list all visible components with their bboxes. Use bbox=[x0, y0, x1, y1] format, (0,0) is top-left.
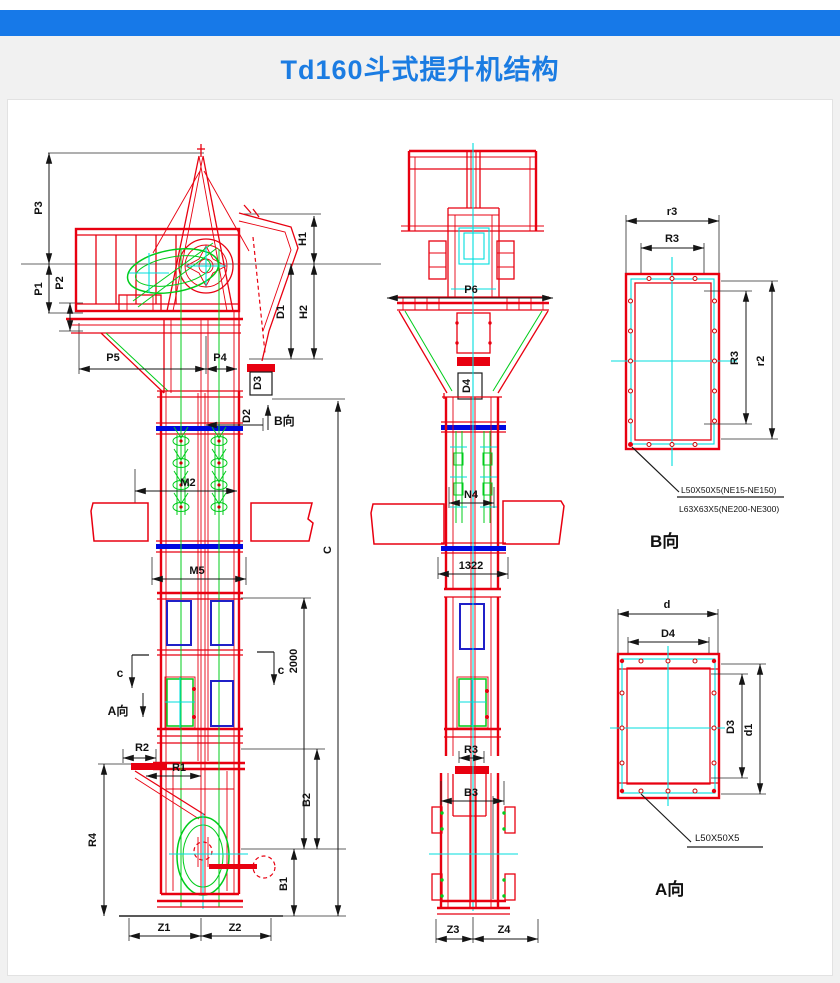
page-title: Td160斗式提升机结构 bbox=[280, 48, 559, 87]
top-margin bbox=[0, 0, 840, 10]
dim-label-p2: P2 bbox=[54, 276, 66, 289]
angle-steel-note-2: L63X63X5(NE200-NE300) bbox=[679, 504, 779, 514]
dim-label-d3-right: D3 bbox=[725, 720, 737, 734]
dim-label-r2-right: r2 bbox=[755, 356, 767, 366]
dim-label-z4: Z4 bbox=[498, 924, 512, 936]
drawing-area: P3 P1 P2 P5 P4 H1 D1 H2 D3 D2 B向 M2 M5 C… bbox=[7, 99, 833, 976]
dim-label-r4: R4 bbox=[87, 832, 99, 847]
dim-label-b1: B1 bbox=[278, 877, 290, 891]
angle-steel-note-a: L50X50X5 bbox=[695, 833, 739, 844]
header-bar bbox=[0, 10, 840, 36]
dim-label-r3-right: R3 bbox=[729, 351, 741, 365]
dim-label-r3-outer: r3 bbox=[667, 206, 677, 218]
front-view-drawing: P3 P1 P2 P5 P4 H1 D1 H2 D3 D2 B向 M2 M5 C… bbox=[21, 144, 381, 941]
dim-label-h2: H2 bbox=[298, 305, 310, 319]
dim-label-d2: D2 bbox=[241, 409, 253, 423]
dim-label-r1: R1 bbox=[172, 762, 186, 774]
dim-label-p1: P1 bbox=[33, 282, 45, 295]
dim-label-n4: N4 bbox=[464, 489, 479, 501]
dim-label-z1: Z1 bbox=[158, 922, 171, 934]
dim-label-b2: B2 bbox=[301, 793, 313, 807]
detail-a-caption: A向 bbox=[655, 879, 684, 899]
detail-a-view: L50X50X5 d D4 D3 d1 A向 bbox=[610, 599, 766, 899]
section-c-left-label: c bbox=[117, 666, 124, 680]
dim-label-d4-inner: D4 bbox=[661, 628, 676, 640]
section-c-right-label: c bbox=[278, 663, 285, 677]
dim-label-r3-side: R3 bbox=[464, 744, 478, 756]
dim-label-d1: D1 bbox=[275, 305, 287, 319]
dim-label-b3: B3 bbox=[464, 787, 478, 799]
dim-label-p6: P6 bbox=[464, 284, 477, 296]
dim-label-c-total: C bbox=[322, 546, 334, 554]
dim-label-m5: M5 bbox=[189, 565, 204, 577]
technical-drawing: P3 P1 P2 P5 P4 H1 D1 H2 D3 D2 B向 M2 M5 C… bbox=[8, 100, 834, 977]
dim-label-2000: 2000 bbox=[288, 649, 300, 673]
detail-b-view: L50X50X5(NE15-NE150) L63X63X5(NE200-NE30… bbox=[611, 206, 784, 551]
dim-label-r2: R2 bbox=[135, 742, 149, 754]
dim-label-1322: 1322 bbox=[459, 560, 483, 572]
dim-label-p5: P5 bbox=[106, 352, 119, 364]
b-view-direction-label: B向 bbox=[274, 413, 295, 428]
dim-label-m2: M2 bbox=[180, 477, 195, 489]
dim-label-p4: P4 bbox=[213, 352, 227, 364]
dim-label-z3: Z3 bbox=[447, 924, 460, 936]
angle-steel-note-1: L50X50X5(NE15-NE150) bbox=[681, 485, 777, 495]
dim-label-d3: D3 bbox=[252, 376, 264, 390]
dim-label-d-outer: d bbox=[664, 599, 671, 611]
dim-label-h1: H1 bbox=[297, 232, 309, 246]
dim-label-d4-side: D4 bbox=[461, 378, 473, 393]
dim-label-d1-right: d1 bbox=[743, 724, 755, 737]
title-band: Td160斗式提升机结构 bbox=[0, 36, 840, 99]
dim-label-p3: P3 bbox=[33, 201, 45, 214]
dim-label-z2: Z2 bbox=[229, 922, 242, 934]
side-view-drawing: P6 D4 N4 1322 R3 B3 Z3 Z4 bbox=[371, 143, 564, 943]
dim-label-r3-inner: R3 bbox=[665, 233, 679, 245]
a-view-direction-label: A向 bbox=[108, 703, 129, 718]
detail-b-caption: B向 bbox=[650, 531, 679, 551]
